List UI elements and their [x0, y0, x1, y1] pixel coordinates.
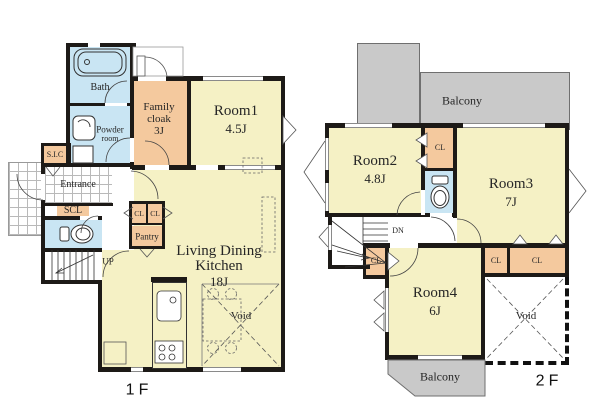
scl-label: SCL	[64, 206, 82, 217]
window	[463, 123, 545, 128]
wall-segment	[146, 204, 148, 223]
window	[385, 288, 389, 332]
door-opening	[105, 103, 127, 106]
vent-opening	[88, 43, 100, 47]
wall-segment	[43, 280, 102, 284]
entrance-label: Entrance	[60, 180, 96, 191]
kitchen-counter	[152, 282, 187, 369]
porch-area	[8, 162, 43, 236]
door-opening	[421, 190, 425, 215]
bath-label: Bath	[91, 83, 110, 94]
toilet1f-area	[45, 220, 102, 248]
window	[203, 367, 241, 372]
door-opening	[41, 174, 45, 200]
void-label: Void	[231, 311, 252, 323]
wall-segment	[129, 246, 165, 249]
door-opening	[430, 213, 452, 217]
family-cloak-size: 3J	[154, 126, 164, 138]
wall-segment	[129, 201, 132, 249]
wall-segment	[363, 243, 366, 279]
floor2-label: 2F	[536, 374, 563, 391]
window	[325, 183, 329, 211]
cl-label: CL	[150, 210, 160, 218]
sic-label: S.I.C	[47, 151, 63, 159]
wall-segment	[507, 248, 510, 273]
cl-label: CL	[371, 257, 381, 265]
stairs-up-icon	[52, 250, 94, 280]
family-cloak-label-1: Family	[143, 102, 174, 114]
door-opening	[390, 243, 418, 248]
wall-segment	[129, 223, 165, 225]
balcony-top-label: Balcony	[442, 95, 482, 108]
exterior-door	[133, 47, 183, 76]
door-opening	[138, 76, 166, 81]
wall-segment	[66, 43, 136, 47]
window-chevron-icon	[374, 291, 384, 309]
window	[418, 355, 462, 360]
powder-label-2: room	[102, 135, 119, 143]
wall-segment	[162, 201, 165, 249]
window-chevron-icon	[374, 313, 384, 331]
ldk-size: 18J	[210, 275, 228, 289]
cl-label: CL	[134, 210, 144, 218]
family-cloak-label-2: cloak	[147, 114, 171, 126]
door-opening	[196, 165, 218, 170]
door-arc	[431, 217, 455, 241]
dn-label: DN	[392, 227, 404, 235]
up-label: UP	[102, 257, 114, 266]
wall-segment	[187, 76, 191, 170]
pantry-label: Pantry	[135, 232, 159, 241]
wall-segment	[41, 143, 44, 165]
window	[131, 367, 143, 372]
room2-label: Room2	[353, 154, 397, 170]
window	[345, 123, 392, 128]
wall-segment	[43, 163, 134, 167]
floor1-label: 1F	[126, 383, 153, 400]
void-label: Void	[516, 311, 537, 323]
room1-label: Room1	[214, 104, 258, 120]
cl-label: CL	[491, 257, 501, 265]
room3-label: Room3	[489, 177, 533, 193]
wall-segment	[423, 168, 455, 171]
room4-size: 6J	[429, 304, 441, 318]
room4-label: Room4	[413, 286, 457, 302]
door-opening	[453, 218, 457, 243]
wall-segment	[129, 201, 165, 204]
toilet2f-area	[425, 171, 453, 213]
cl-label: CL	[435, 144, 445, 152]
room2-size: 4.8J	[364, 172, 385, 186]
wall-segment	[481, 243, 485, 359]
ldk-label-2: Kitchen	[195, 259, 242, 275]
balcony-bottom-label: Balcony	[420, 371, 460, 384]
window	[325, 138, 329, 170]
window	[225, 165, 275, 170]
wall-segment	[565, 243, 569, 277]
balcony-top-area	[357, 43, 420, 130]
bay-window-icon	[569, 169, 586, 213]
bath-powder-area	[70, 45, 130, 167]
cl-label: CL	[532, 257, 542, 265]
room1-size: 4.5J	[225, 122, 246, 136]
window-chevron-icon	[319, 227, 328, 247]
wall-segment	[483, 273, 569, 277]
bay-window-icon	[304, 141, 325, 203]
window	[328, 225, 332, 250]
room3-size: 7J	[505, 195, 517, 209]
wall-segment	[98, 280, 102, 372]
wall-segment	[43, 248, 102, 252]
door-opening	[145, 165, 169, 170]
wall-segment	[565, 123, 569, 247]
ldk-area-lower-left	[102, 250, 134, 367]
window	[203, 76, 263, 81]
wall-segment	[68, 143, 71, 165]
door-opening	[80, 216, 98, 220]
wall-segment	[281, 76, 285, 372]
wall-segment	[41, 216, 45, 284]
floor-plan: Bath Powder room Family cloak 3J Room1 4…	[0, 0, 600, 420]
door-opening	[130, 138, 134, 162]
wall-segment	[100, 367, 285, 372]
